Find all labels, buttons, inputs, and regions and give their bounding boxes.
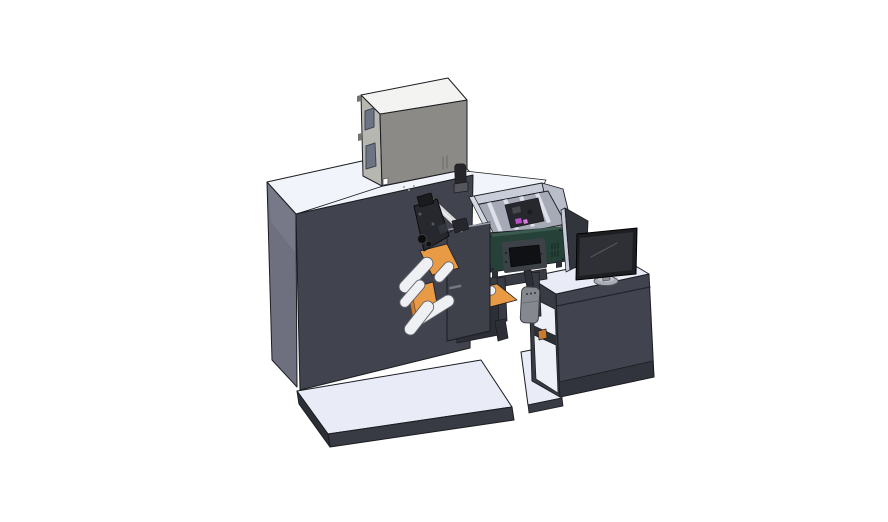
cabinet-window-upper xyxy=(365,108,374,130)
filter-cylinder-base xyxy=(454,182,468,193)
cabinet-indicator-square xyxy=(383,178,388,185)
touchscreen-display xyxy=(509,245,541,267)
printhead-bolts-dot xyxy=(432,223,435,226)
hmi-screws-dot xyxy=(559,229,561,231)
machine-rivet-dots-dot xyxy=(413,185,415,187)
pendant-control xyxy=(520,287,540,324)
tray-mechanism-knob xyxy=(528,210,533,215)
printhead-roller-hub xyxy=(418,235,427,244)
machine-rivet-dots-dot xyxy=(403,186,405,188)
printhead-roller-hub-2-dot xyxy=(426,241,432,247)
touchscreen-buttons-dot xyxy=(505,261,507,263)
pendant-buttons-dot xyxy=(530,293,532,295)
hmi-screws-dot xyxy=(492,268,494,270)
tray-mechanism-knob-dot xyxy=(528,210,533,215)
outfeed-orange-sliver xyxy=(538,329,547,340)
front-panel xyxy=(447,222,490,341)
pendant-buttons-dot xyxy=(526,293,528,295)
hmi-screws-dot xyxy=(562,258,564,260)
machine-rivet-dots-dot xyxy=(408,189,410,191)
touchscreen-buttons-dot xyxy=(505,252,507,254)
machine-assembly-render xyxy=(0,0,888,522)
cad-viewport xyxy=(0,0,888,522)
cabinet-hinge-lower xyxy=(358,133,362,141)
printhead-roller-hub-2 xyxy=(426,241,432,247)
cabinet-hinge-upper xyxy=(357,95,361,102)
tray-magenta-part xyxy=(515,218,522,224)
printhead-roller-hub-dot xyxy=(418,235,427,244)
stand-foot xyxy=(495,319,508,341)
printhead-bolts-dot xyxy=(419,213,422,216)
cabinet-window-lower xyxy=(366,143,376,169)
hmi-foot-right xyxy=(556,260,562,268)
touchscreen-buttons-dot xyxy=(540,253,542,255)
pendant-buttons-dot xyxy=(534,292,536,294)
monitor-screen xyxy=(579,232,633,276)
